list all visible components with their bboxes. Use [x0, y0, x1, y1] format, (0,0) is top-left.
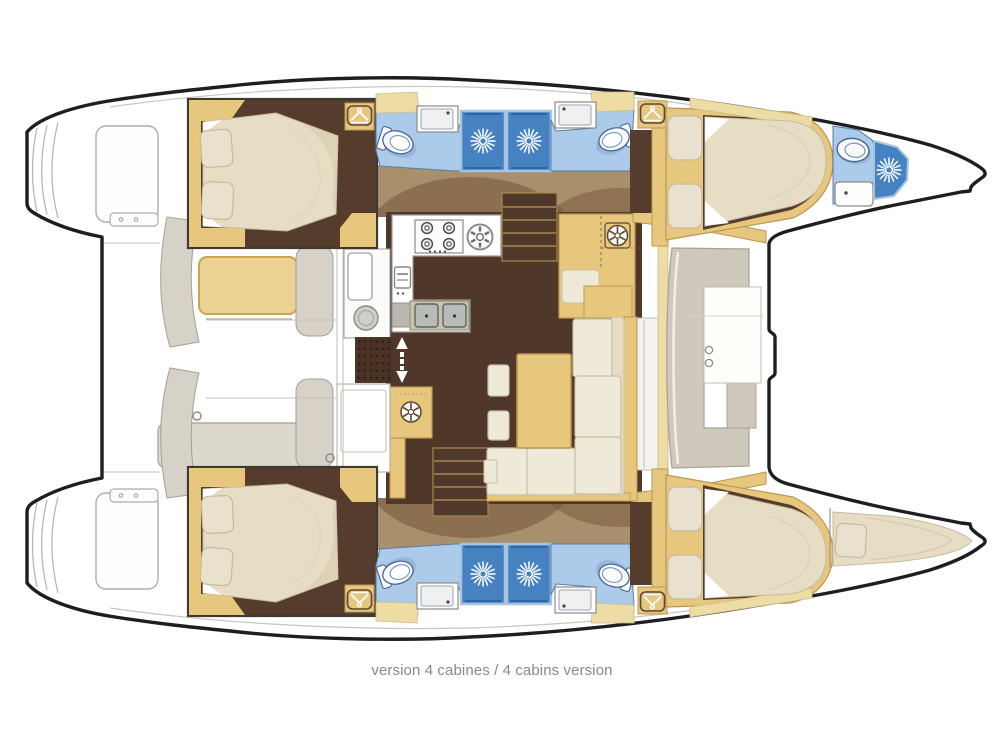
svg-text:version 4 cabines / 4 cabins v: version 4 cabines / 4 cabins version: [371, 662, 612, 679]
